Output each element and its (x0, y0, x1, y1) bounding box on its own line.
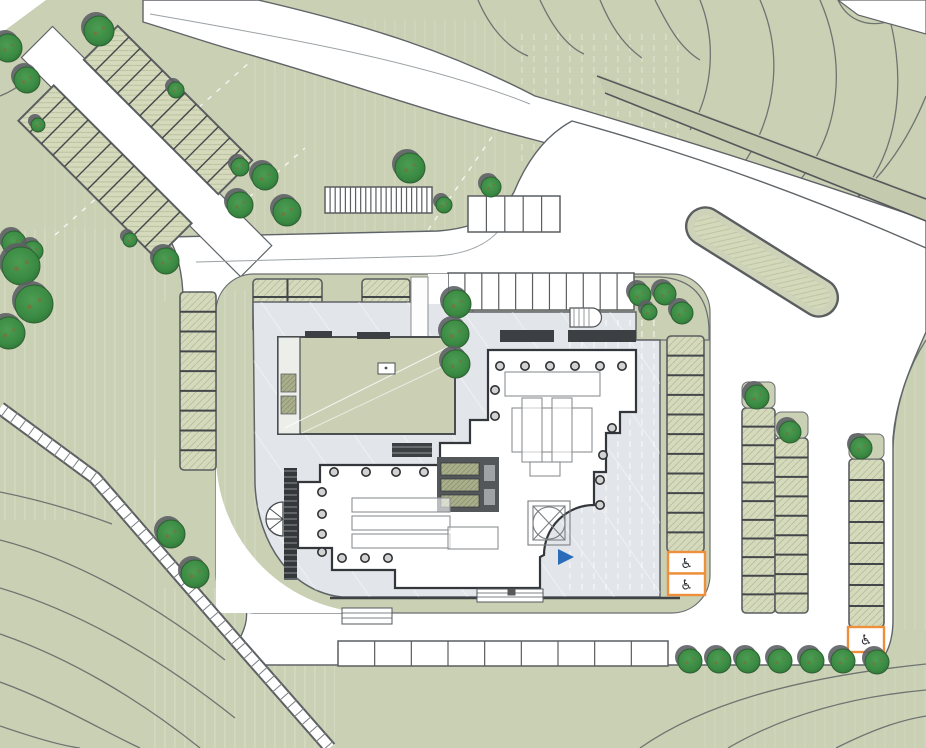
structural-column (618, 362, 626, 370)
structural-column (491, 386, 499, 394)
accessible-parking-space: ♿♿ (668, 552, 705, 595)
roof-overhang-bar (568, 330, 636, 342)
parking-row-white (325, 187, 432, 213)
parking-row-white (468, 196, 560, 232)
structural-column (608, 424, 616, 432)
structural-column (362, 468, 370, 476)
parking-row-white (338, 641, 668, 666)
structural-column (318, 530, 326, 538)
furniture-block (505, 372, 600, 396)
structural-column (318, 488, 326, 496)
site-plan-drawing: ♿♿♿ (0, 0, 926, 748)
structural-column (599, 451, 607, 459)
parking-row-white (448, 273, 634, 310)
roof-overhang-bar (305, 331, 332, 338)
structural-column (571, 362, 579, 370)
site-plan-canvas: ♿♿♿ (0, 0, 926, 748)
green-roof-building (278, 331, 455, 434)
parking-row-green (775, 438, 808, 613)
structural-column (392, 468, 400, 476)
furniture-block (522, 398, 542, 462)
wheelchair-icon: ♿ (860, 633, 873, 649)
structural-column (496, 362, 504, 370)
parking-row-green (667, 336, 704, 552)
furniture-block (352, 534, 450, 548)
structural-column (521, 362, 529, 370)
structural-column (596, 362, 604, 370)
stair-core (284, 468, 297, 580)
structural-column (338, 554, 346, 562)
structural-column (420, 468, 428, 476)
structural-column (491, 412, 499, 420)
structural-column (384, 554, 392, 562)
roof-overhang-bar (357, 332, 390, 339)
furniture-block (352, 516, 450, 530)
parking-row-green (849, 459, 884, 627)
structural-column (330, 468, 338, 476)
structural-column (318, 548, 326, 556)
roof-bar-hatched (392, 443, 432, 457)
structural-column (596, 476, 604, 484)
furniture-block (530, 462, 560, 476)
parking-row-green (742, 408, 775, 613)
wheelchair-icon: ♿ (680, 577, 693, 593)
furniture-block (448, 527, 498, 549)
structural-column (361, 554, 369, 562)
roof-overhang-bar (500, 330, 554, 342)
parking-row-green (180, 292, 216, 470)
entry-stair (570, 308, 602, 327)
wheelchair-icon: ♿ (680, 556, 693, 572)
furniture-block (552, 398, 572, 462)
structural-column (546, 362, 554, 370)
furniture-block (352, 498, 450, 512)
structural-column (318, 510, 326, 518)
structural-column (596, 501, 604, 509)
